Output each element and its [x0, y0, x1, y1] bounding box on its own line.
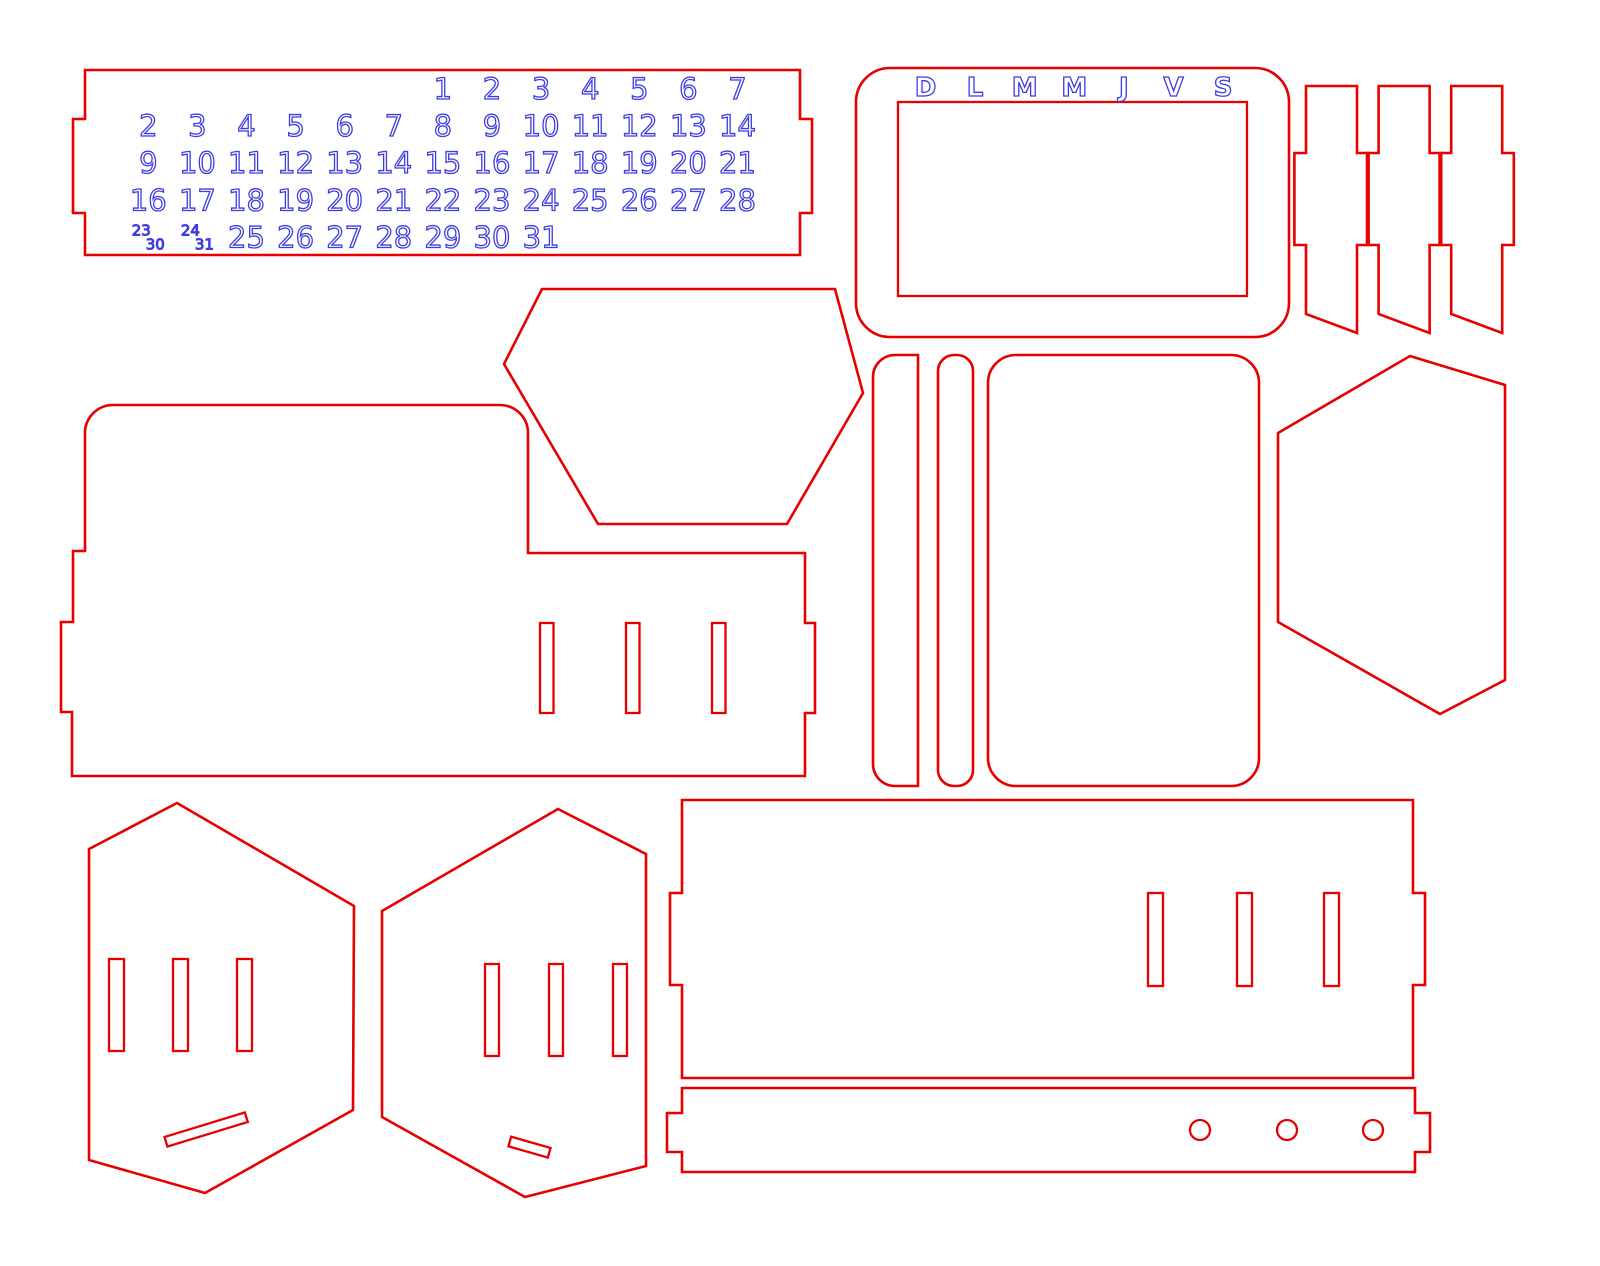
base-plate-slot-2	[626, 623, 640, 713]
calendar-day-number-stacked-bottom: 31	[195, 235, 214, 253]
right-hexagon-piece	[1278, 356, 1505, 714]
side-panel-right-angled-slot	[508, 1137, 550, 1158]
calendar-day-number: 14	[375, 146, 412, 180]
weekday-letter: M	[1061, 73, 1087, 103]
side-panel-right-slot-1	[485, 964, 499, 1056]
calendar-day-number: 8	[434, 109, 452, 143]
weekday-letter: D	[915, 73, 937, 103]
vector-drawing: 1234567234567891011121314910111213141516…	[0, 0, 1600, 1266]
calendar-day-number: 23	[474, 183, 511, 217]
calendar-day-number: 20	[670, 146, 707, 180]
side-panel-right-slot-2	[549, 964, 563, 1056]
calendar-day-number: 10	[523, 109, 560, 143]
calendar-day-number: 9	[483, 109, 501, 143]
calendar-day-number: 20	[326, 183, 363, 217]
calendar-day-number: 6	[335, 109, 353, 143]
calendar-day-number: 26	[277, 220, 314, 254]
calendar-day-number: 11	[572, 109, 609, 143]
calendar-day-number: 27	[670, 183, 707, 217]
calendar-day-number: 4	[237, 109, 255, 143]
calendar-day-number: 11	[228, 146, 265, 180]
calendar-day-number: 27	[326, 220, 363, 254]
calendar-day-number: 13	[326, 146, 363, 180]
base-plate-slot-3	[712, 623, 726, 713]
calendar-day-number: 17	[179, 183, 216, 217]
calendar-day-number: 14	[719, 109, 756, 143]
bottom-rail-piece	[667, 1088, 1430, 1172]
calendar-day-number: 7	[385, 109, 403, 143]
calendar-day-number: 5	[630, 72, 648, 106]
calendar-day-number: 19	[277, 183, 314, 217]
back-plate-piece	[670, 800, 1425, 1078]
weekday-letters-engraving: DLMMJVS	[915, 73, 1233, 103]
month-pointer-piece-1	[1294, 86, 1368, 333]
support-strip-1	[873, 355, 918, 786]
calendar-day-number: 5	[286, 109, 304, 143]
rail-hole-3	[1363, 1120, 1383, 1140]
calendar-day-number: 1	[434, 72, 452, 106]
side-panel-left-slot-3	[237, 959, 252, 1051]
weekday-letter: L	[967, 73, 984, 103]
calendar-day-number: 26	[621, 183, 658, 217]
calendar-day-number: 2	[483, 72, 501, 106]
side-panel-right	[382, 809, 646, 1197]
month-pointer-piece-2	[1367, 86, 1441, 333]
side-panel-left-slot-1	[109, 959, 124, 1051]
roof-hexagon-piece	[504, 289, 863, 524]
calendar-day-number: 9	[139, 146, 157, 180]
back-plate-slot-1	[1148, 893, 1163, 986]
back-plate-slot-2	[1237, 893, 1252, 986]
calendar-day-number: 25	[572, 183, 609, 217]
calendar-day-number: 15	[424, 146, 461, 180]
calendar-day-number: 29	[424, 220, 461, 254]
base-plate-slot-1	[540, 623, 554, 713]
back-plate-slot-3	[1324, 893, 1339, 986]
side-panel-left-slot-2	[173, 959, 188, 1051]
weekday-letter: J	[1117, 73, 1129, 103]
side-panel-left-angled-slot	[165, 1112, 248, 1146]
base-plate-piece	[61, 405, 815, 776]
calendar-day-number: 2	[139, 109, 157, 143]
calendar-day-number: 12	[277, 146, 314, 180]
calendar-numbers-engraving: 1234567234567891011121314910111213141516…	[130, 72, 756, 254]
weekday-letter: V	[1163, 73, 1183, 103]
front-panel-piece	[988, 355, 1259, 786]
calendar-day-number: 18	[572, 146, 609, 180]
calendar-day-number: 13	[670, 109, 707, 143]
calendar-day-number: 30	[474, 220, 511, 254]
calendar-day-number: 16	[474, 146, 511, 180]
side-panel-left	[89, 803, 354, 1193]
weekday-letter: S	[1214, 73, 1233, 103]
calendar-day-number: 12	[621, 109, 658, 143]
calendar-day-number: 18	[228, 183, 265, 217]
calendar-day-number: 10	[179, 146, 216, 180]
calendar-day-number: 28	[719, 183, 756, 217]
calendar-day-number: 25	[228, 220, 265, 254]
calendar-day-number: 17	[523, 146, 560, 180]
calendar-day-number: 3	[188, 109, 206, 143]
calendar-day-number: 31	[523, 220, 560, 254]
calendar-day-number: 21	[375, 183, 412, 217]
month-pointer-piece-3	[1440, 86, 1514, 333]
calendar-day-number: 3	[532, 72, 550, 106]
laser-cut-template-canvas: 1234567234567891011121314910111213141516…	[0, 0, 1600, 1266]
calendar-day-number: 19	[621, 146, 658, 180]
calendar-day-number-stacked-bottom: 30	[146, 235, 165, 253]
calendar-day-number: 16	[130, 183, 167, 217]
rail-hole-1	[1190, 1120, 1210, 1140]
side-panel-right-slot-3	[613, 964, 627, 1056]
support-strip-2	[938, 355, 973, 786]
calendar-day-number: 7	[728, 72, 746, 106]
calendar-day-number: 28	[375, 220, 412, 254]
calendar-day-number: 24	[523, 183, 560, 217]
weekday-plate-window-cutout	[898, 102, 1247, 296]
calendar-day-number: 21	[719, 146, 756, 180]
calendar-day-number: 22	[424, 183, 461, 217]
rail-hole-2	[1277, 1120, 1297, 1140]
weekday-letter: M	[1012, 73, 1038, 103]
calendar-day-number: 6	[679, 72, 697, 106]
calendar-day-number: 4	[581, 72, 599, 106]
